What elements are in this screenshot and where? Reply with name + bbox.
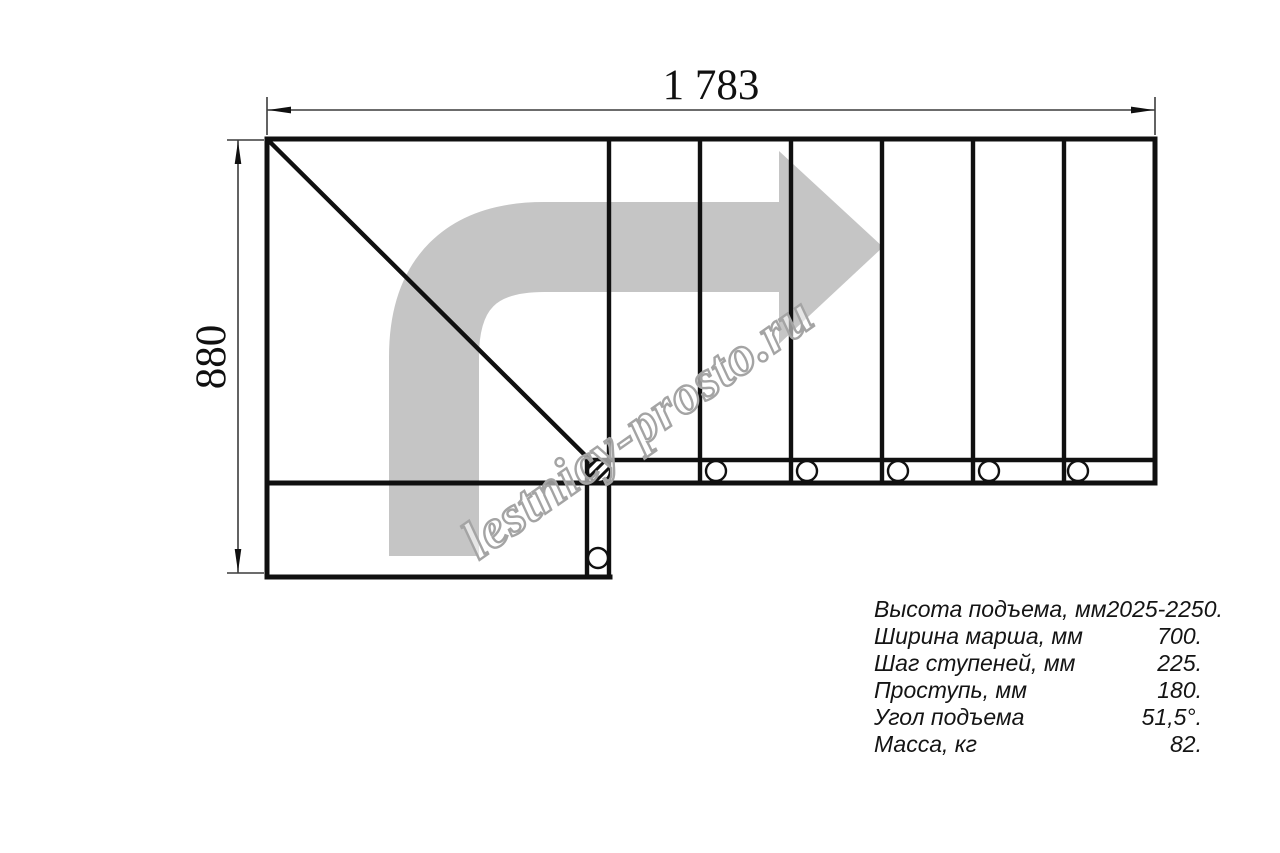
stringer-bolts [588, 461, 1088, 568]
spec-label: Ширина марша, мм [874, 623, 1083, 650]
spec-value: 51,5°. [1142, 704, 1202, 731]
dimension-top: 1 783 [267, 62, 1155, 135]
bolt-circle [797, 461, 817, 481]
spec-value: 180. [1157, 677, 1202, 704]
bolt-circle [979, 461, 999, 481]
bolt-circle [888, 461, 908, 481]
top-dimension-label: 1 783 [663, 62, 760, 109]
dim-arrowhead-left [268, 107, 291, 114]
spec-label: Шаг ступеней, мм [874, 650, 1075, 677]
dim-arrowhead-right [1131, 107, 1154, 114]
spec-label: Угол подъема [874, 704, 1024, 731]
stair-plan-page: 1 783 880 lestnicy-prosto.ru Высота подъ… [0, 0, 1280, 853]
left-dimension-label: 880 [188, 325, 235, 390]
spec-row: Ширина марша, мм 700. [874, 623, 1202, 650]
spec-label: Высота подъема, мм [874, 596, 1107, 623]
spec-value: 700. [1157, 623, 1202, 650]
dim-arrowhead-top [235, 141, 242, 164]
bolt-circle [1068, 461, 1088, 481]
spec-row: Масса, кг 82. [874, 731, 1202, 758]
spec-label: Масса, кг [874, 731, 977, 758]
spec-value: 2025-2250. [1107, 596, 1223, 623]
watermark-text: lestnicy-prosto.ru [450, 283, 824, 570]
dim-arrowhead-bottom [235, 549, 242, 572]
spec-row: Угол подъема 51,5°. [874, 704, 1202, 731]
spec-row: Шаг ступеней, мм 225. [874, 650, 1202, 677]
spec-row: Высота подъема, мм 2025-2250. [874, 596, 1202, 623]
bolt-circle [706, 461, 726, 481]
spec-value: 82. [1170, 731, 1202, 758]
bolt-circle [588, 548, 608, 568]
dimension-left: 880 [188, 140, 264, 573]
specs-table: Высота подъема, мм 2025-2250. Ширина мар… [874, 596, 1202, 758]
spec-value: 225. [1157, 650, 1202, 677]
spec-label: Проступь, мм [874, 677, 1027, 704]
spec-row: Проступь, мм 180. [874, 677, 1202, 704]
